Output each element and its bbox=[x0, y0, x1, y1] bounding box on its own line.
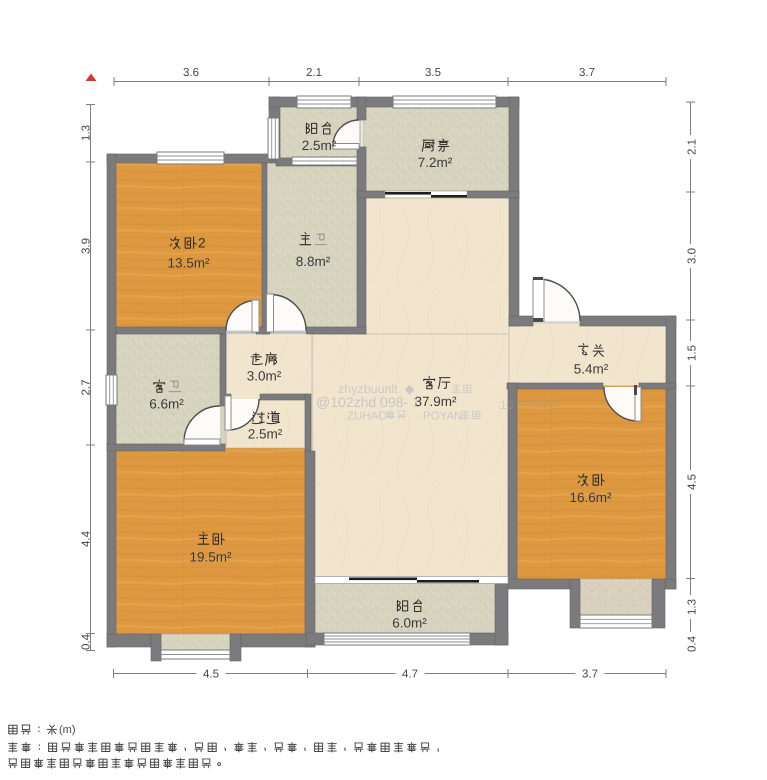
svg-text:(m): (m) bbox=[59, 724, 76, 736]
svg-text:3.7: 3.7 bbox=[579, 67, 595, 79]
svg-text:2: 2 bbox=[198, 235, 206, 250]
svg-text:· POYAN: · POYAN bbox=[416, 411, 462, 423]
svg-text:2.5m²: 2.5m² bbox=[302, 138, 337, 153]
svg-text:5.4m²: 5.4m² bbox=[574, 362, 609, 377]
svg-text:4.7: 4.7 bbox=[402, 669, 418, 681]
svg-text:ZUHAO: ZUHAO bbox=[347, 411, 387, 423]
svg-text:3.0: 3.0 bbox=[687, 248, 699, 264]
svg-text:0.4: 0.4 bbox=[81, 633, 93, 650]
svg-text:16.6m²: 16.6m² bbox=[569, 490, 612, 505]
svg-text:2.1: 2.1 bbox=[306, 67, 322, 79]
svg-text:@102zhd 098- 1: @102zhd 098- 1 bbox=[316, 394, 420, 410]
svg-text:2.5m²: 2.5m² bbox=[248, 427, 283, 442]
svg-text:3.7: 3.7 bbox=[582, 669, 598, 681]
svg-text:3.9: 3.9 bbox=[81, 238, 93, 254]
svg-text:37.9m²: 37.9m² bbox=[414, 394, 457, 409]
svg-text:6.6m²: 6.6m² bbox=[149, 397, 184, 412]
svg-text:3.6: 3.6 bbox=[183, 67, 199, 79]
svg-text:19.5m²: 19.5m² bbox=[189, 550, 232, 565]
svg-text:3.5: 3.5 bbox=[425, 67, 441, 79]
svg-text:7.2m²: 7.2m² bbox=[418, 155, 453, 170]
svg-text:13.5m²: 13.5m² bbox=[167, 256, 210, 271]
svg-text:2.1: 2.1 bbox=[687, 139, 699, 155]
svg-text:2.7: 2.7 bbox=[81, 380, 93, 396]
svg-text:4.4: 4.4 bbox=[81, 530, 93, 547]
svg-text:4.5: 4.5 bbox=[687, 474, 699, 490]
svg-text:1.3: 1.3 bbox=[81, 125, 93, 141]
svg-text:0.4: 0.4 bbox=[687, 635, 699, 652]
svg-text:3.0m²: 3.0m² bbox=[247, 369, 282, 384]
svg-text:4.5: 4.5 bbox=[203, 669, 219, 681]
svg-text:1.3: 1.3 bbox=[687, 599, 699, 615]
svg-text:6.0m²: 6.0m² bbox=[392, 616, 427, 631]
svg-text:8.8m²: 8.8m² bbox=[296, 254, 331, 269]
svg-text:1.5: 1.5 bbox=[687, 345, 699, 361]
svg-text:10: 10 bbox=[500, 398, 514, 412]
